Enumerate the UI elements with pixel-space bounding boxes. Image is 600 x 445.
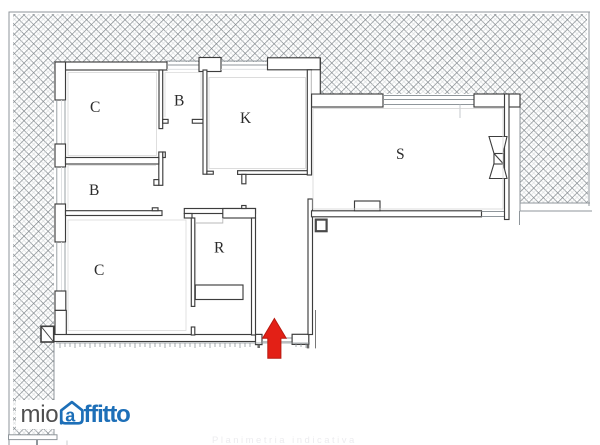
svg-text:ffitto: ffitto bbox=[84, 401, 131, 428]
svg-text:C: C bbox=[90, 99, 100, 116]
svg-text:a: a bbox=[65, 406, 76, 426]
svg-text:K: K bbox=[240, 110, 252, 127]
svg-text:mio: mio bbox=[21, 401, 59, 428]
svg-text:B: B bbox=[89, 182, 99, 199]
svg-text:S: S bbox=[396, 146, 405, 163]
svg-text:C: C bbox=[94, 262, 104, 279]
svg-text:B: B bbox=[174, 93, 184, 110]
svg-text:Planimetria indicativa: Planimetria indicativa bbox=[212, 435, 357, 445]
svg-text:R: R bbox=[214, 240, 225, 257]
